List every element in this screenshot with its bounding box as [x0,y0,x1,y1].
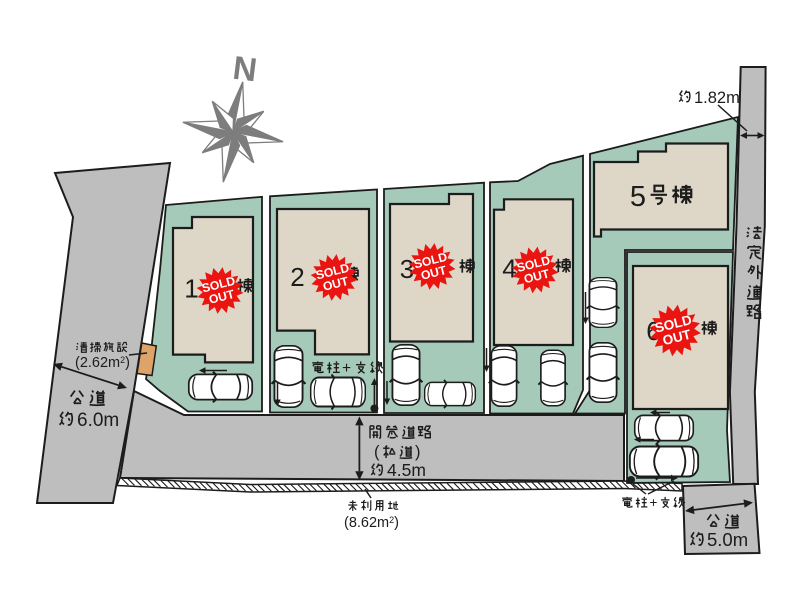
svg-text:+: + [650,495,658,510]
svg-text:+: + [342,360,351,377]
svg-text:4.5m: 4.5m [387,460,426,480]
svg-text:(: ( [374,443,380,461]
svg-text:5: 5 [630,181,646,213]
svg-text:1: 1 [184,274,198,304]
svg-text:): ) [415,443,421,461]
svg-text:6.0m: 6.0m [77,410,119,431]
svg-text:5.0m: 5.0m [707,529,748,550]
svg-text:N: N [231,49,259,89]
svg-text:2: 2 [290,262,304,292]
svg-text:1.82m: 1.82m [694,89,740,107]
